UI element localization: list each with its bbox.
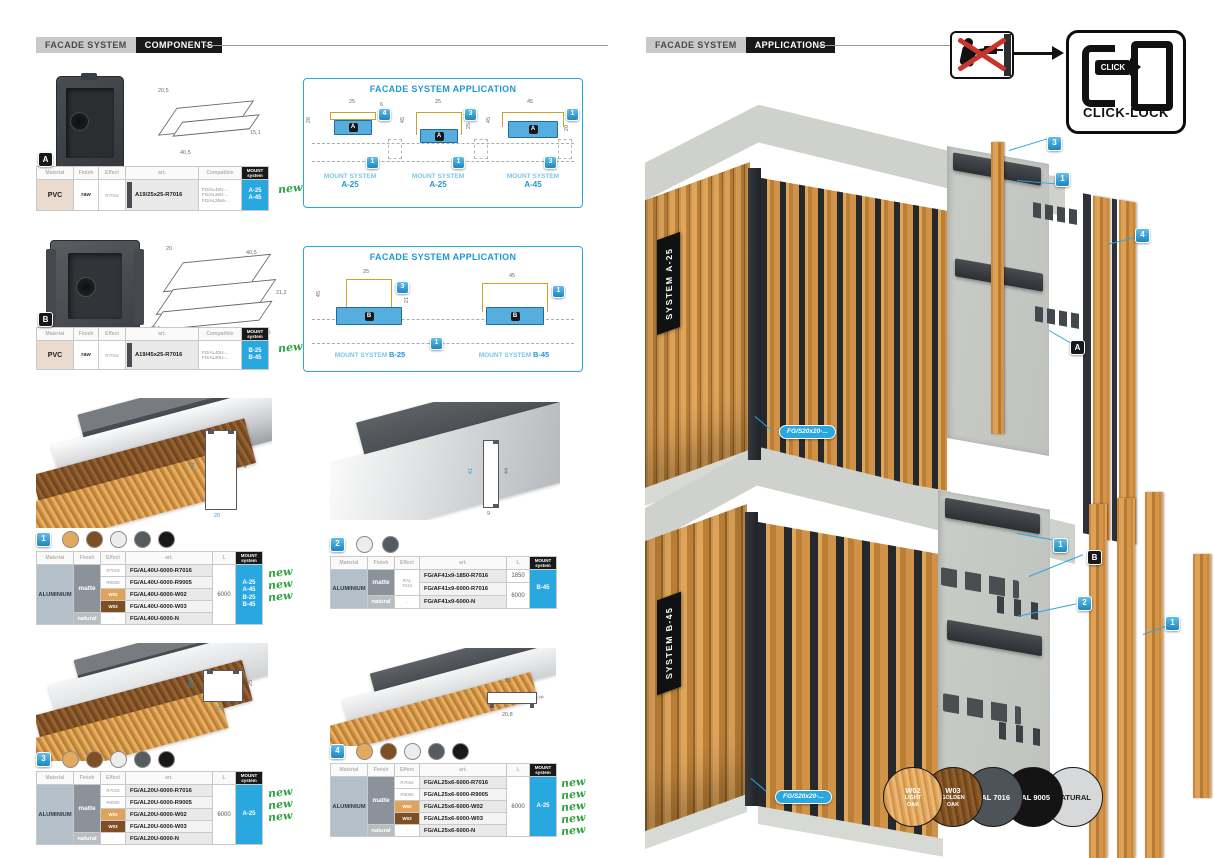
dim-label: 25	[216, 706, 222, 712]
callout-badge: A	[1070, 340, 1085, 355]
no-drilling-icon	[950, 31, 1014, 79]
cell-effect: R7016	[395, 777, 419, 788]
dim-label: 44	[504, 468, 510, 474]
left-header: FACADE SYSTEM COMPONENTS	[36, 37, 222, 53]
col-header-mount: MOUNTsystem	[242, 328, 268, 340]
callout-badge: 1	[552, 285, 565, 298]
mount-system-label: MOUNT SYSTEMA-25	[306, 173, 394, 189]
dim-label: 41	[468, 468, 474, 474]
backing-profile	[1112, 199, 1117, 542]
dim-label: 41	[190, 462, 196, 468]
cell-art: FG/AL40U-6000-W03	[126, 601, 212, 612]
component-a-table: Material Finish Effect art. Compatible M…	[36, 166, 269, 211]
color-dot-white	[110, 751, 127, 768]
col-header: Material	[331, 557, 367, 569]
cell-effect: -	[395, 825, 419, 836]
col-header-mount: MOUNTsystem	[530, 764, 556, 776]
cell-effect: W02	[101, 809, 125, 820]
mount-clip: B	[336, 307, 402, 325]
cell-effect: W02	[101, 589, 125, 600]
col-header: art.	[126, 167, 198, 179]
cell-art: FG/AL40U-6000-R7016	[126, 565, 212, 576]
click-badge: CLICK	[1095, 60, 1131, 75]
cross-section-2	[483, 440, 499, 508]
profile-cross-section	[330, 112, 376, 120]
callout-badge: 1	[452, 156, 465, 169]
wood-slat	[1193, 554, 1211, 798]
col-header: Effect	[99, 328, 125, 340]
cell-art: FG/AL40U-6000-W02	[126, 589, 212, 600]
catalog-page: FACADE SYSTEM COMPONENTS 20,5 15,1 40,5 …	[0, 0, 1214, 858]
dim-label: 25	[414, 99, 462, 105]
col-header: L	[507, 764, 529, 776]
clip-letter: B	[511, 312, 520, 321]
mount-clip: B	[486, 307, 544, 325]
cell-effect: -	[101, 613, 125, 624]
callout-badge: 1	[1055, 172, 1070, 187]
section-4-badge: 4	[330, 744, 345, 759]
callout-line	[1009, 138, 1048, 151]
cell-art: FG/AL40U-6000-R9005	[126, 577, 212, 588]
cell-art: FG/AL25x6-6000-R9005	[420, 789, 506, 800]
section-3-table: Material Finish Effect art. L MOUNTsyste…	[36, 771, 263, 845]
backing-profile	[1083, 193, 1091, 534]
col-header: L	[213, 772, 235, 784]
drill-bit	[997, 49, 1003, 51]
col-header: Material	[37, 552, 73, 564]
cross-section-4	[487, 692, 537, 704]
callout-badge: 3	[544, 156, 557, 169]
cell-finish: matte	[368, 570, 394, 595]
callout-line	[1049, 330, 1072, 344]
dim-label: 15,1	[250, 130, 261, 136]
arrow-head	[1052, 46, 1064, 60]
dim-label: 20	[564, 125, 570, 131]
callout-badge: 3	[464, 108, 477, 121]
section-1-table: Material Finish Effect art. L MOUNTsyste…	[36, 551, 263, 625]
component-b-badge: B	[38, 312, 53, 327]
clip-letter: A	[349, 123, 358, 132]
cell-length: 1850	[507, 570, 529, 582]
col-header: Effect	[395, 557, 419, 569]
new-flag: new	[277, 340, 303, 355]
cell-effect: R7016	[101, 785, 125, 796]
callout-badge: 4	[1135, 228, 1150, 243]
col-header: Material	[37, 328, 73, 340]
col-header: L	[213, 552, 235, 564]
col-header: art.	[420, 557, 506, 569]
col-header-mount: MOUNTsystem	[530, 557, 556, 569]
color-dots	[62, 531, 175, 548]
cell-art: FG/AL25x6-6000-R7016	[420, 777, 506, 788]
color-dot-black	[452, 743, 469, 760]
dim-label: 45	[486, 117, 492, 123]
cell-effect: -	[101, 833, 125, 844]
system-label: SYSTEM B-45	[657, 592, 681, 696]
wood-slat	[1093, 196, 1110, 541]
cell-finish: natural	[74, 613, 100, 624]
cell-art: FG/AL20U-6000-W03	[126, 821, 212, 832]
color-dot-w03	[380, 743, 397, 760]
dim-label: 21,2	[276, 290, 287, 296]
wood-slat	[1119, 200, 1136, 545]
cell-finish: matte	[74, 785, 100, 832]
dashed-line	[312, 161, 574, 162]
left-header-rule	[205, 45, 608, 46]
corner-profile	[745, 512, 758, 806]
part-label-pill: FG/S20x20-...	[775, 790, 832, 804]
cross-section-3	[203, 670, 243, 702]
cell-art: FG/AF41x9-6000-N	[420, 596, 506, 608]
callout-badge: 3	[396, 281, 409, 294]
col-header: Effect	[101, 772, 125, 784]
color-dot-white	[110, 531, 127, 548]
cell-finish: raw	[74, 341, 98, 369]
dim-label: 45	[316, 291, 322, 297]
cell-material: ALUMINIUM	[37, 785, 73, 844]
col-header: art.	[420, 764, 506, 776]
callout-badge: 1	[1165, 616, 1180, 631]
cell-length: 6000	[213, 565, 235, 624]
mount-system-label: MOUNT SYSTEMA-45	[488, 173, 578, 189]
cell-effect: R9005	[395, 789, 419, 800]
cell-effect: RAL7016	[395, 570, 419, 595]
cell-effect: R7016	[101, 565, 125, 576]
dim-label: 20,4	[188, 678, 194, 689]
cell-compatible: FG/AL40U-...FG/AL20U-...FG/AL25x6-...	[199, 180, 241, 210]
col-header: Finish	[368, 764, 394, 776]
color-dot-w02	[62, 531, 79, 548]
col-header: L	[507, 557, 529, 569]
cell-mount: B-45	[530, 570, 556, 608]
callout-badge: 4	[378, 108, 391, 121]
color-dot-black	[158, 531, 175, 548]
cross-section-1	[205, 430, 237, 510]
cell-art: FG/AL20U-6000-N	[126, 833, 212, 844]
cell-mount: A-25	[236, 785, 262, 844]
col-header: art.	[126, 772, 212, 784]
cell-mount: A-25	[530, 777, 556, 836]
dashed-line	[312, 343, 574, 344]
section-2-table: Material Finish Effect art. L MOUNTsyste…	[330, 556, 557, 609]
color-dots	[62, 751, 175, 768]
mount-clip: A	[508, 121, 558, 138]
dim-label: 45	[500, 99, 560, 105]
component-b-photo	[50, 240, 140, 334]
clip-cavity	[68, 253, 122, 319]
cell-compatible: FG/AL40U-...FG/AL20U-...	[199, 341, 241, 369]
cell-art: FG/AF41x9-6000-R7016	[420, 583, 506, 595]
component-a-drawing: 20,5 15,1 40,5	[148, 86, 273, 166]
callout-badge: 1	[366, 156, 379, 169]
cell-mount: A-25A-45	[242, 180, 268, 210]
bracket-right-glyph	[1131, 41, 1173, 111]
right-header: FACADE SYSTEM APPLICATIONS	[646, 37, 835, 53]
color-dots	[356, 743, 469, 760]
section-1-badge: 1	[36, 532, 51, 547]
cell-finish: raw	[74, 180, 98, 210]
click-lock-label: CLICK-LOCK	[1069, 105, 1183, 120]
click-arrow-head	[1130, 58, 1141, 76]
dim-label: 25	[248, 680, 254, 686]
dim-label: 25	[328, 99, 376, 105]
color-dot-w02	[356, 743, 373, 760]
dim-label: 45	[400, 117, 406, 123]
col-header: Material	[37, 772, 73, 784]
color-dot-white	[404, 743, 421, 760]
callout-badge: 1	[566, 108, 579, 121]
col-header: Finish	[74, 167, 98, 179]
cell-effect: R7016	[99, 180, 125, 210]
clip-letter: B	[365, 312, 374, 321]
app-box-title: FACADE SYSTEM APPLICATION	[304, 252, 582, 262]
cell-art: FG/AL20U-6000-R9005	[126, 797, 212, 808]
clip-hole	[70, 112, 89, 131]
color-dot-gray	[428, 743, 445, 760]
callout-badge: B	[1087, 550, 1102, 565]
click-lock-icon: CLICK CLICK-LOCK	[1066, 30, 1186, 134]
mount-clip: A	[420, 129, 458, 143]
callout-badge: 3	[1047, 136, 1062, 151]
cell-effect: W03	[101, 601, 125, 612]
app-box-title: FACADE SYSTEM APPLICATION	[304, 84, 582, 94]
cell-finish: natural	[74, 833, 100, 844]
left-header-primary: FACADE SYSTEM	[36, 37, 136, 53]
col-header: Finish	[74, 328, 98, 340]
right-header-rule	[816, 45, 950, 46]
cell-effect: W02	[395, 801, 419, 812]
color-dot-gray	[134, 531, 151, 548]
dim-label: 20	[166, 246, 172, 252]
clip-rail	[134, 249, 144, 325]
wood-slat	[1117, 498, 1135, 858]
cell-effect: R9005	[101, 797, 125, 808]
cell-art: A19/25x25-R7016	[126, 180, 198, 210]
dim-label: 21	[404, 297, 410, 303]
cell-art: FG/AF41x9-1850-R7016	[420, 570, 506, 582]
col-header: Material	[331, 764, 367, 776]
col-header-mount: MOUNTsystem	[236, 772, 262, 784]
mount-clip: A	[334, 120, 372, 135]
profile-photo-2	[330, 402, 560, 520]
color-dots	[356, 536, 399, 553]
section-2-badge: 2	[330, 537, 345, 552]
col-header-mount: MOUNTsystem	[236, 552, 262, 564]
cell-art: FG/AL25x6-6000-W02	[420, 801, 506, 812]
section-4-table: Material Finish Effect art. L MOUNTsyste…	[330, 763, 557, 837]
clip-tab	[81, 73, 97, 80]
system-label: SYSTEM A-25	[657, 232, 680, 335]
clip-letter: A	[435, 132, 444, 141]
col-header: Finish	[368, 557, 394, 569]
dim-label: 25	[466, 123, 472, 129]
cell-length: 6000	[507, 583, 529, 608]
col-header: Finish	[74, 772, 100, 784]
cell-effect: -	[395, 596, 419, 608]
part-label-pill: FG/S20x20-...	[779, 425, 836, 439]
bracket-left-glyph	[1082, 45, 1115, 107]
cell-material: ALUMINIUM	[331, 777, 367, 836]
new-flag: new	[560, 823, 586, 838]
col-header: art.	[126, 552, 212, 564]
ghost-outline	[558, 139, 572, 159]
dim-label: 40,5	[246, 250, 257, 256]
dim-label: 25	[505, 678, 511, 684]
col-header-mount: MOUNTsystem	[242, 167, 268, 179]
dim-label: 20,8	[502, 712, 513, 718]
new-flag: new	[267, 809, 293, 824]
cell-finish: natural	[368, 596, 394, 608]
profile-photo-3	[36, 643, 268, 761]
cell-finish: matte	[74, 565, 100, 612]
cell-art: FG/AL40U-6000-N	[126, 613, 212, 624]
callout-badge: 1	[1053, 538, 1068, 553]
mount-system-label: MOUNT SYSTEMA-25	[394, 173, 482, 189]
cell-material: PVC	[37, 180, 73, 210]
dashed-line	[312, 143, 574, 144]
col-header: Compatible	[199, 167, 241, 179]
wood-slat	[991, 142, 1004, 434]
ghost-outline	[388, 139, 402, 159]
scene-system-a25: SYSTEM A-25 3 1 4 A FG/S20x20-...	[645, 98, 1210, 466]
clip-cavity	[66, 88, 114, 158]
wood-slat	[1145, 492, 1163, 858]
cell-effect: R9005	[101, 577, 125, 588]
cell-art: A19/45x25-R7016	[126, 341, 198, 369]
cell-finish: natural	[368, 825, 394, 836]
col-header: Effect	[101, 552, 125, 564]
color-dot-w02	[62, 751, 79, 768]
cell-length: 6000	[213, 785, 235, 844]
arrow-line	[1014, 52, 1056, 55]
dim-label: 40,5	[180, 150, 191, 156]
color-dot-w03	[86, 751, 103, 768]
ghost-outline	[474, 139, 488, 159]
component-b-table: Material Finish Effect art. Compatible M…	[36, 327, 269, 370]
cell-finish: matte	[368, 777, 394, 824]
dim-label: 45	[243, 462, 249, 468]
col-header: Effect	[395, 764, 419, 776]
swatch-w02: W02LIGHTOAK	[883, 767, 943, 827]
color-dot-black	[158, 751, 175, 768]
application-box-b: FACADE SYSTEM APPLICATION 25 B 3 45 21 M…	[303, 246, 583, 372]
callout-badge: 1	[430, 337, 443, 350]
color-dot-gray	[134, 751, 151, 768]
color-dot-gray	[382, 536, 399, 553]
cell-material: ALUMINIUM	[331, 570, 367, 608]
dim-label: 9	[487, 511, 490, 517]
col-header: Finish	[74, 552, 100, 564]
cell-material: PVC	[37, 341, 73, 369]
component-a-photo	[56, 76, 124, 170]
cell-material: ALUMINIUM	[37, 565, 73, 624]
application-box-a: FACADE SYSTEM APPLICATION 25 A 4 26 6 1 …	[303, 78, 583, 208]
dim-label: 26	[306, 117, 312, 123]
color-dot-white	[356, 536, 373, 553]
dim-label: 6	[540, 695, 546, 698]
color-dot-w03	[86, 531, 103, 548]
new-flag: new	[267, 589, 293, 604]
cell-effect: R7016	[99, 341, 125, 369]
section-3-badge: 3	[36, 752, 51, 767]
dim-label: 45	[480, 273, 544, 279]
cell-art: FG/AL20U-6000-R7016	[126, 785, 212, 796]
col-header: Effect	[99, 167, 125, 179]
cell-length: 6000	[507, 777, 529, 836]
cell-art: FG/AL20U-6000-W02	[126, 809, 212, 820]
cell-effect: W03	[101, 821, 125, 832]
new-flag: new	[277, 181, 303, 196]
mount-system-label: MOUNT SYSTEM B-45	[454, 350, 574, 359]
cell-art: FG/AL25x6-6000-W03	[420, 813, 506, 824]
callout-badge: 2	[1077, 596, 1092, 611]
dim-label: 20	[214, 513, 220, 519]
col-header: Compatible	[199, 328, 241, 340]
dim-label: 20,5	[158, 88, 169, 94]
component-a-badge: A	[38, 152, 53, 167]
cell-effect: W03	[395, 813, 419, 824]
clip-letter: A	[529, 125, 538, 134]
cell-mount: A-25A-45B-25B-45	[236, 565, 262, 624]
mount-system-label: MOUNT SYSTEM B-25	[310, 350, 430, 359]
clip-hole	[76, 277, 96, 297]
right-header-primary: FACADE SYSTEM	[646, 37, 746, 53]
cell-mount: B-25B-45	[242, 341, 268, 369]
cell-art: FG/AL25x6-6000-N	[420, 825, 506, 836]
col-header: Material	[37, 167, 73, 179]
dim-label: 25	[344, 269, 388, 275]
col-header: art.	[126, 328, 198, 340]
